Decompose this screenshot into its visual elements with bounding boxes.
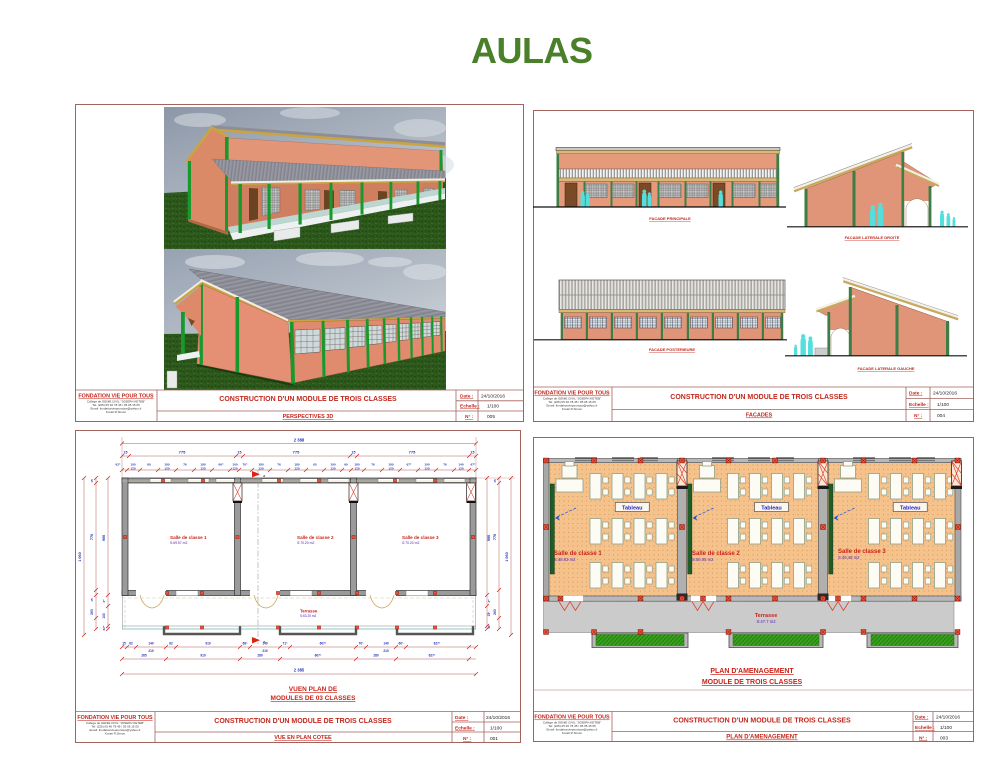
svg-text:607⁵: 607⁵ [320, 642, 327, 646]
svg-text:Echelle :: Echelle : [460, 404, 480, 410]
svg-text:S:48.93 m2: S:48.93 m2 [554, 557, 576, 562]
svg-text:70⁵: 70⁵ [358, 642, 364, 646]
svg-text:003: 003 [940, 736, 948, 742]
svg-text:900: 900 [487, 535, 491, 541]
svg-text:Tableau: Tableau [761, 506, 781, 512]
svg-text:MODULES DE 03 CLASSES: MODULES DE 03 CLASSES [271, 695, 357, 702]
svg-text:VUEN PLAN DE: VUEN PLAN DE [289, 686, 338, 693]
svg-text:Korati R.Simon: Korati R.Simon [562, 731, 583, 735]
svg-text:76: 76 [277, 463, 281, 467]
svg-text:263: 263 [90, 609, 94, 615]
svg-text:19⁷: 19⁷ [487, 611, 491, 617]
svg-text:Terrasse: Terrasse [300, 609, 318, 614]
svg-text:65: 65 [313, 463, 317, 467]
svg-text:60⁵: 60⁵ [398, 642, 404, 646]
svg-text:15: 15 [90, 479, 94, 483]
svg-text:S:63.25 m2: S:63.25 m2 [300, 614, 317, 618]
svg-text:a: a [263, 473, 266, 478]
svg-text:15: 15 [122, 642, 126, 646]
svg-text:15: 15 [124, 451, 128, 455]
svg-text:S:49.48 m2: S:49.48 m2 [838, 555, 860, 560]
svg-text:S:70.20 m2: S:70.20 m2 [402, 541, 419, 545]
svg-text:PERSPECTIVES 3D: PERSPECTIVES 3D [283, 414, 334, 420]
svg-text:Date :: Date : [455, 715, 469, 721]
svg-text:Salle de classe 2: Salle de classe 2 [297, 535, 334, 540]
svg-text:210: 210 [148, 649, 154, 653]
svg-text:120: 120 [200, 466, 205, 470]
svg-text:1/100: 1/100 [490, 726, 502, 732]
svg-text:1 060: 1 060 [505, 552, 509, 562]
svg-text:Salle de classe 1: Salle de classe 1 [170, 535, 207, 540]
svg-text:900: 900 [102, 535, 106, 541]
svg-text:76: 76 [443, 463, 447, 467]
svg-text:90: 90 [344, 463, 348, 467]
svg-text:62⁵: 62⁵ [116, 463, 121, 467]
svg-text:Korati R.Simon: Korati R.Simon [562, 407, 583, 411]
svg-text:FACADE POSTERIEURE: FACADE POSTERIEURE [649, 347, 696, 352]
svg-text:770: 770 [90, 534, 94, 540]
svg-text:S:69.57 m2: S:69.57 m2 [170, 541, 187, 545]
svg-text:N° :: N° : [463, 736, 472, 742]
svg-text:24/10/2016: 24/10/2016 [933, 391, 957, 397]
svg-text:210: 210 [262, 649, 268, 653]
svg-text:120: 120 [258, 466, 263, 470]
svg-text:S:50.05 m2: S:50.05 m2 [692, 557, 714, 562]
svg-text:Date :: Date : [909, 391, 923, 397]
svg-text:120: 120 [354, 466, 359, 470]
svg-text:627⁵: 627⁵ [434, 642, 441, 646]
svg-text:CONSTRUCTION D'UN MODULE DE TR: CONSTRUCTION D'UN MODULE DE TROIS CLASSE… [219, 396, 397, 403]
svg-text:Echelle :: Echelle : [455, 726, 475, 732]
svg-text:FACADES: FACADES [746, 413, 773, 419]
svg-text:15: 15 [238, 451, 242, 455]
svg-text:2⁵: 2⁵ [487, 599, 491, 603]
svg-text:N° :: N° : [465, 414, 474, 420]
svg-text:607⁵: 607⁵ [315, 654, 322, 658]
svg-text:76: 76 [371, 463, 375, 467]
svg-text:MODULE DE TROIS CLASSES: MODULE DE TROIS CLASSES [702, 679, 803, 686]
svg-text:1/100: 1/100 [937, 402, 949, 408]
svg-text:1 060: 1 060 [78, 552, 82, 562]
svg-text:CONSTRUCTION D'UN MODULE DE TR: CONSTRUCTION D'UN MODULE DE TROIS CLASSE… [214, 718, 392, 725]
svg-text:120: 120 [294, 466, 299, 470]
svg-text:FACADE PRINCIPALE: FACADE PRINCIPALE [649, 216, 691, 221]
svg-text:775: 775 [409, 450, 416, 455]
svg-text:71⁵: 71⁵ [282, 642, 288, 646]
svg-text:2 388: 2 388 [294, 438, 305, 443]
svg-text:3⁵: 3⁵ [102, 599, 106, 603]
svg-text:15: 15 [352, 451, 356, 455]
svg-text:627⁵: 627⁵ [429, 654, 436, 658]
svg-text:910: 910 [200, 654, 206, 658]
svg-text:140: 140 [148, 642, 154, 646]
svg-text:120: 120 [232, 466, 237, 470]
svg-text:001: 001 [490, 736, 498, 742]
svg-text:120: 120 [130, 466, 135, 470]
svg-text:770: 770 [493, 534, 497, 540]
svg-text:265: 265 [141, 654, 147, 658]
svg-text:140: 140 [383, 642, 389, 646]
svg-text:62⁵: 62⁵ [102, 625, 106, 630]
svg-text:280: 280 [373, 654, 379, 658]
svg-text:15: 15 [471, 451, 475, 455]
svg-text:67⁵: 67⁵ [471, 463, 476, 467]
svg-text:N° :: N° : [914, 413, 923, 419]
svg-text:80: 80 [147, 463, 151, 467]
svg-text:120: 120 [330, 466, 335, 470]
svg-text:280: 280 [257, 654, 263, 658]
svg-text:24/10/2016: 24/10/2016 [936, 715, 960, 721]
svg-text:PLAN D'AMENAGEMENT: PLAN D'AMENAGEMENT [710, 668, 794, 675]
svg-text:910: 910 [205, 642, 211, 646]
svg-text:68⁵: 68⁵ [242, 642, 248, 646]
svg-text:Echelle :: Echelle : [909, 402, 929, 408]
svg-text:CONSTRUCTION D'UN MODULE DE TR: CONSTRUCTION D'UN MODULE DE TROIS CLASSE… [670, 394, 848, 401]
svg-text:Tableau: Tableau [900, 506, 920, 512]
svg-text:Tableau: Tableau [622, 506, 642, 512]
svg-text:70⁵: 70⁵ [243, 463, 248, 467]
svg-text:210: 210 [383, 649, 389, 653]
svg-text:120: 120 [424, 466, 429, 470]
svg-text:S:70.20 m2: S:70.20 m2 [297, 541, 314, 545]
svg-text:775: 775 [293, 450, 300, 455]
svg-text:VUE EN PLAN COTEE: VUE EN PLAN COTEE [274, 735, 332, 741]
svg-text:005: 005 [487, 414, 495, 420]
svg-text:24/10/2016: 24/10/2016 [481, 394, 505, 400]
svg-text:120: 120 [458, 466, 463, 470]
svg-text:S:47.7 m2: S:47.7 m2 [756, 619, 776, 624]
svg-text:62: 62 [129, 642, 133, 646]
svg-text:FACADE LATERALE GAUCHE: FACADE LATERALE GAUCHE [857, 366, 914, 371]
svg-text:Salle de classe 3: Salle de classe 3 [402, 535, 439, 540]
svg-text:1/100: 1/100 [487, 404, 499, 410]
svg-text:100: 100 [102, 613, 106, 619]
svg-text:Date :: Date : [460, 394, 474, 400]
svg-text:PLAN D'AMENAGEMENT: PLAN D'AMENAGEMENT [726, 735, 798, 741]
svg-text:62: 62 [169, 642, 173, 646]
svg-text:15: 15 [90, 598, 94, 602]
svg-text:CONSTRUCTION D'UN MODULE DE TR: CONSTRUCTION D'UN MODULE DE TROIS CLASSE… [673, 718, 851, 725]
svg-text:67⁵: 67⁵ [407, 463, 412, 467]
svg-text:120: 120 [164, 466, 169, 470]
svg-text:Korati R.Simon: Korati R.Simon [106, 410, 127, 414]
svg-text:263: 263 [493, 609, 497, 615]
svg-text:15: 15 [493, 479, 497, 483]
svg-text:76: 76 [183, 463, 187, 467]
svg-text:2 385: 2 385 [294, 668, 305, 673]
svg-text:Echelle :: Echelle : [915, 725, 935, 731]
svg-text:775: 775 [179, 450, 186, 455]
svg-text:120: 120 [388, 466, 393, 470]
svg-text:004: 004 [937, 413, 945, 419]
svg-text:Date :: Date : [915, 715, 929, 721]
svg-text:FACADE LATERALE DROITE: FACADE LATERALE DROITE [845, 235, 900, 240]
svg-text:1/100: 1/100 [940, 725, 952, 731]
svg-text:24/10/2016: 24/10/2016 [486, 715, 510, 721]
svg-text:Korati R.Simon: Korati R.Simon [105, 732, 126, 736]
svg-text:N° :: N° : [919, 736, 928, 742]
svg-text:49: 49 [487, 625, 491, 629]
svg-text:66⁵: 66⁵ [219, 463, 224, 467]
